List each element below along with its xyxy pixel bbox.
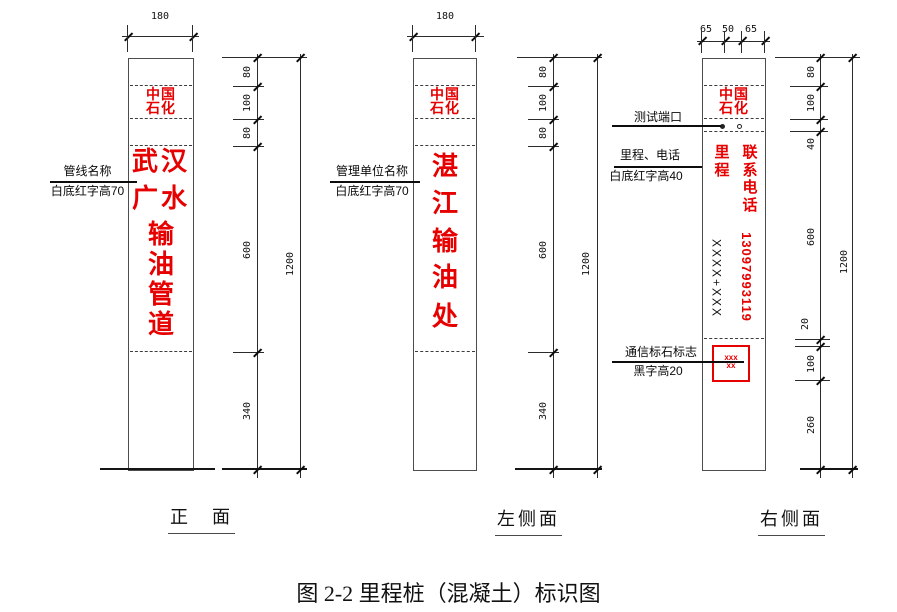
right-dash-2 [704, 118, 764, 119]
front-dim-tick-top [222, 57, 307, 58]
left-dim-80b: 80 [538, 116, 550, 150]
left-name-c2: 江 [413, 190, 477, 217]
front-name-row6: 道 [128, 311, 194, 338]
mileage-phone-label: 里程、电话 [606, 149, 694, 162]
right-dim-40: 40 [806, 127, 818, 161]
front-dash-ground [130, 351, 192, 352]
left-dim-total-1200: 1200 [581, 247, 593, 281]
left-name-c1: 湛 [413, 153, 477, 180]
left-dim-line-outer [597, 54, 598, 478]
front-name-row2: 广水 [128, 185, 194, 212]
left-logo-line2: 石化 [413, 102, 477, 116]
comm-marker-spec: 黑字高20 [618, 365, 698, 378]
front-top-ext-right [192, 25, 193, 52]
front-top-dim-line [122, 36, 199, 37]
mileage-value-text: XXXX+XXX [711, 227, 724, 331]
mileage-phone-leader [614, 166, 702, 168]
left-name-c5: 处 [413, 303, 477, 330]
front-dim-80a: 80 [242, 55, 254, 89]
right-top-dim-50: 50 [718, 24, 738, 36]
left-dim-100: 100 [538, 86, 550, 120]
left-name-c4: 油 [413, 264, 477, 291]
left-sinopec-logo: 中国 石化 [413, 88, 477, 115]
front-dim-80b: 80 [242, 116, 254, 150]
contact-char-1: 联 [734, 144, 766, 162]
right-dim-100a: 100 [806, 86, 818, 120]
right-sinopec-logo: 中国 石化 [702, 88, 766, 115]
left-view-label: 左侧面 [495, 505, 562, 536]
front-sinopec-logo: 中国 石化 [128, 88, 194, 115]
front-logo-line2: 石化 [128, 102, 194, 116]
front-dim-total-1200: 1200 [285, 247, 297, 281]
front-top-ext-left [127, 25, 128, 52]
right-dash-ground [704, 338, 764, 339]
left-top-dim-label: 180 [415, 11, 475, 23]
left-dim-80a: 80 [538, 55, 550, 89]
comm-marker-label: 通信标石标志 [618, 346, 704, 359]
front-ground-line-right [222, 468, 307, 470]
front-name-row4: 油 [128, 251, 194, 278]
front-name-row5: 管 [128, 281, 194, 308]
right-view-label: 右侧面 [758, 505, 825, 536]
contact-char-2: 系 [734, 162, 766, 180]
front-name-row3: 输 [128, 221, 194, 248]
left-dash-3 [415, 145, 475, 146]
front-annotation-leader [50, 181, 137, 183]
test-port-dot-right [737, 124, 742, 129]
right-dim-20: 20 [800, 307, 812, 341]
test-port-leader [612, 125, 721, 127]
left-annotation-title: 管理单位名称 [322, 165, 422, 178]
left-annotation-spec: 白底红字高70 [322, 185, 422, 198]
right-dim-line-outer [852, 54, 853, 478]
right-top-dim-65a: 65 [696, 24, 716, 36]
left-dim-base-line [515, 468, 602, 470]
mileage-phone-spec: 白底红字高40 [598, 170, 694, 183]
right-dim-100b: 100 [806, 347, 818, 381]
comm-marker-leader [612, 361, 744, 363]
front-name-row1: 武汉 [128, 148, 194, 175]
left-top-ext-left [412, 25, 413, 52]
test-port-label: 测试端口 [628, 111, 688, 124]
right-top-ext [764, 31, 765, 53]
contact-phone-number: 13097993119 [740, 210, 754, 344]
right-top-ext [741, 31, 742, 53]
front-dim-line-outer [300, 54, 301, 478]
front-ground-line-left [100, 468, 215, 470]
front-annotation-title: 管线名称 [38, 165, 137, 178]
front-dim-100: 100 [242, 86, 254, 120]
comm-marker-box: xxx xx [712, 345, 750, 382]
right-top-ext [724, 31, 725, 53]
front-annotation-spec: 白底红字高70 [38, 185, 137, 198]
left-dim-tick-top [517, 57, 602, 58]
front-dash-2 [130, 118, 192, 119]
figure-caption: 图 2-2 里程桩（混凝土）标识图 [0, 576, 897, 608]
front-view-label: 正 面 [168, 503, 235, 534]
right-dash-3 [704, 131, 764, 132]
right-dim-260: 260 [806, 408, 818, 442]
right-dim-total-1200: 1200 [839, 245, 851, 279]
right-logo-line2: 石化 [702, 102, 766, 116]
right-dim-base-line [800, 468, 858, 470]
right-dim-80: 80 [806, 55, 818, 89]
right-top-dim-65b: 65 [741, 24, 761, 36]
front-dim-600: 600 [242, 233, 254, 267]
left-annotation-leader [330, 181, 420, 183]
right-top-ext [701, 31, 702, 53]
left-dim-340: 340 [538, 394, 550, 428]
right-contact-column: 联 系 电 话 [734, 144, 766, 214]
right-dim-600: 600 [806, 220, 818, 254]
front-top-dim-label: 180 [130, 11, 190, 23]
right-top-dim-line [697, 41, 770, 42]
front-dim-tick-600 [233, 352, 264, 353]
left-dash-2 [415, 118, 475, 119]
left-name-c3: 输 [413, 228, 477, 255]
left-dash-ground [415, 351, 475, 352]
front-dim-340: 340 [242, 394, 254, 428]
left-top-ext-right [475, 25, 476, 52]
drawing-canvas: 180 中国 石化 武汉 广水 输 油 管 道 管线名称 白底红字高70 80 … [0, 0, 897, 612]
contact-char-3: 电 [734, 179, 766, 197]
left-dim-600: 600 [538, 233, 550, 267]
